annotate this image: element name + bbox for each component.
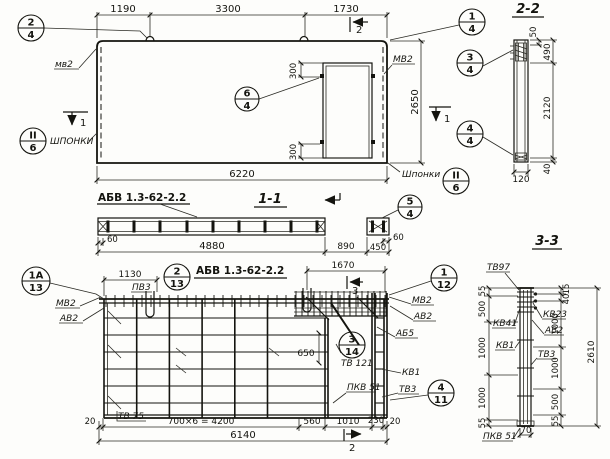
dim-700x6: 700×6 = 4200 [168,417,235,427]
svg-text:1А: 1А [29,271,44,282]
svg-text:4: 4 [469,24,476,35]
svg-text:6: 6 [30,143,37,154]
dim-1730: 1730 [333,4,358,15]
callout-3-4: 3 4 [457,50,483,76]
callout-1-12: 1 12 [431,265,457,291]
label-mv2-left: МВ2 [56,299,76,309]
section-mark-1-right: 1 [429,107,451,125]
svg-text:1: 1 [441,268,448,279]
section-mark-2-top: 2 [350,17,368,36]
dim-450: 450 [370,243,386,253]
section-3-3: 3-3 55 500 1000 1000 55 [478,234,601,442]
label-pv3: ПВ3 [132,283,151,293]
svg-text:4: 4 [467,136,474,147]
callout-6-4: 6 4 [235,87,259,112]
diagonal-bars [108,297,378,409]
mesh-ticks-top [106,295,385,307]
label-kv23: КВ23 [543,310,567,320]
dim-300-bottom: 300 [289,144,299,160]
panel-cross-section [98,218,325,235]
callout-keys-right: II 6 [443,168,469,194]
svg-text:4: 4 [438,383,445,394]
svg-text:4: 4 [467,65,474,76]
dim-120: 120 [512,175,529,185]
dim-right-40: 40 [562,294,572,305]
dim-300-top: 300 [289,63,299,79]
svg-text:13: 13 [170,279,184,290]
callout-4-11: 4 11 [428,380,454,406]
dim-4880: 4880 [199,241,224,252]
section-mark-2-bottom: 2 [344,429,361,454]
label-tv97: ТВ97 [487,263,510,273]
svg-text:4: 4 [28,30,35,41]
svg-text:5: 5 [407,197,414,208]
dim-20-left: 20 [85,417,96,427]
dim-60-left: 60 [107,235,118,245]
label-pkv51: ПКВ 51 [483,432,517,442]
dim-50: 50 [529,27,539,38]
panel-mark-label: АБВ 1.3-62-2.2 [98,192,186,204]
svg-text:2: 2 [349,443,355,454]
dim-70: 70 [521,426,532,436]
dim-890: 890 [337,242,354,252]
svg-text:1: 1 [469,12,476,23]
dim-1010: 1010 [337,417,360,427]
dim-left-1000a: 1000 [478,337,488,359]
dim-650: 650 [297,349,314,359]
callout-2-4: 2 4 [18,15,44,41]
dim-right-55: 55 [551,416,561,427]
svg-text:11: 11 [434,395,448,406]
svg-text:2: 2 [174,267,181,278]
svg-text:1: 1 [444,114,450,125]
section-2-2-title: 2-2 [516,2,540,17]
horizontal-bars [104,318,328,403]
label-kv1: КВ1 [496,341,514,351]
svg-text:2: 2 [356,25,362,36]
dim-2650: 2650 [410,89,421,114]
dim-230: 230 [368,416,384,426]
svg-text:3: 3 [352,286,358,297]
label-av2: АВ2 [544,326,563,336]
label-tv3: ТВ3 [399,385,417,395]
dim-60-right: 60 [393,233,404,243]
dim-40: 40 [543,164,553,175]
dim-3300: 3300 [215,4,240,15]
callout-1-4: 1 4 [459,9,485,35]
svg-text:12: 12 [437,280,451,291]
dim-20-right: 20 [390,417,401,427]
svg-text:13: 13 [29,283,43,294]
label-tv3: ТВ3 [538,350,556,360]
section-mark-1-left: 1 [63,112,88,129]
svg-text:II: II [452,171,459,182]
label-tv75: ТВ 75 [118,412,144,422]
svg-text:2: 2 [28,18,35,29]
dim-right-1000b: 1000 [551,357,561,379]
view-direction-arrow [325,193,340,200]
callout-keys-left: II 6 [20,128,46,154]
section-mark-3: 3 [347,276,363,297]
drawing-canvas: 1190 3300 1730 2 6220 2650 300 300 6 [0,0,610,459]
svg-text:6: 6 [244,89,251,100]
dim-1190: 1190 [110,4,135,15]
svg-text:4: 4 [407,209,414,220]
svg-text:14: 14 [345,347,359,358]
callout-5-4: 5 4 [398,195,422,220]
dim-490: 490 [543,43,553,60]
label-ab5: АБ5 [395,329,414,339]
hairpin-loop-icon [146,291,154,317]
embed-top [510,43,527,61]
reinforcement-view: АБВ 1.3-62-2.2 2 13 [22,261,457,454]
dim-left-1000b: 1000 [478,387,488,409]
plan-view: 1190 3300 1730 2 6220 2650 300 300 6 [18,4,485,194]
reinf-title: АБВ 1.3-62-2.2 [196,265,284,277]
label-keys-left: ШПОНКИ [50,137,94,147]
label-av2-left: АВ2 [59,314,78,324]
dim-left-55a: 55 [478,286,488,297]
label-pkv51: ПКВ 51 [347,383,381,393]
svg-text:3: 3 [349,335,356,346]
svg-text:II: II [29,131,36,142]
svg-text:4: 4 [467,124,474,135]
dim-1130: 1130 [119,270,142,280]
svg-text:4: 4 [244,101,251,112]
panel-outline [97,41,387,163]
vertical-bars [104,299,268,418]
section-3-3-member [520,288,531,426]
callout-3-14: 3 14 [339,332,365,358]
pier-cross-section [367,218,389,235]
dim-560: 560 [303,417,320,427]
section-1-1-title: 1-1 [258,192,282,207]
callout-4-4: 4 4 [457,121,483,147]
dim-right-15: 15 [562,284,572,295]
callout-1a-13: 1А 13 [22,267,50,295]
dim-2610: 2610 [587,340,597,363]
label-mv2-right: МВ2 [412,296,432,306]
dim-left-55b: 55 [478,418,488,429]
dim-right-500: 500 [551,394,561,410]
label-mv2-left: мв2 [55,60,73,70]
label-mv2-right: МВ2 [393,55,413,65]
callout-2-13: 2 13 [164,264,190,290]
label-kv1: КВ1 [402,368,420,378]
svg-text:6: 6 [453,183,460,194]
dim-6220: 6220 [229,169,254,180]
svg-text:1: 1 [80,118,86,129]
drawing-sheet: 1190 3300 1730 2 6220 2650 300 300 6 [0,0,610,459]
svg-text:3: 3 [467,53,474,64]
label-tv121: ТВ 121 [341,359,373,369]
dim-2120: 2120 [543,96,553,119]
label-kv41: КВ41 [493,319,517,329]
door-opening [320,63,375,158]
label-keys-right: Шпонки [402,170,440,180]
section-3-3-title: 3-3 [535,234,559,249]
dim-left-500: 500 [478,301,488,317]
label-av2-right: АВ2 [413,312,432,322]
dim-1670: 1670 [332,261,355,271]
section-1-1: АБВ 1.3-62-2.2 1-1 [97,192,422,256]
dim-6140: 6140 [230,430,255,441]
